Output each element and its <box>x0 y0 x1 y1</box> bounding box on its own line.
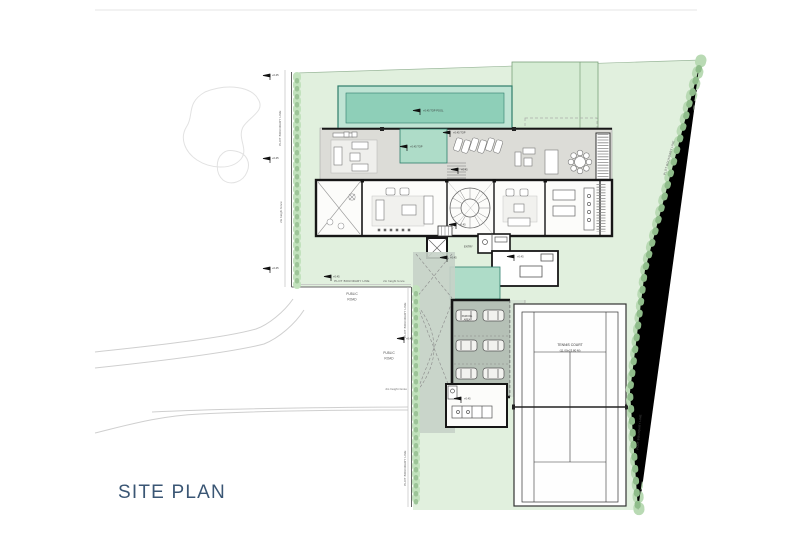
public-road-label-1b: ROAD <box>347 298 357 302</box>
plot-boundary-label-left: PLOT BOUNDARY LINE <box>278 110 282 145</box>
level-label: +0.45 <box>406 337 413 341</box>
column <box>361 179 365 183</box>
tennis-court: TENNIS COURT (11.00x23.80 M) <box>512 304 628 506</box>
column <box>493 179 497 183</box>
deck-level-label2: +0.45 TOP <box>410 145 423 149</box>
louver-hatch <box>596 133 610 180</box>
entry-planter <box>450 267 500 299</box>
parking-area-label2: AREA <box>464 319 471 322</box>
level-label: +0.45 <box>464 397 471 401</box>
level-label: +0.45 <box>272 266 279 270</box>
fence-label-road: 2m height fence <box>386 387 408 391</box>
public-road-label-2a: PUBLIC <box>383 351 395 355</box>
plot-boundary-label-bottom: PLOT BOUNDARY LINE <box>334 279 369 283</box>
pool-level-label: +0.45 TOP POOL <box>423 109 444 113</box>
column <box>544 179 548 183</box>
level-label: +0.45 <box>450 256 457 260</box>
level-label: +0.45 <box>272 73 279 77</box>
road-edges <box>95 299 408 433</box>
tennis-court-dim-label: (11.00x23.80 M) <box>560 349 581 353</box>
public-road-label-2b: ROAD <box>384 357 394 361</box>
main-house <box>316 179 612 236</box>
column <box>512 127 516 131</box>
plot-boundary-label-road-lower: PLOT BOUNDARY LINE <box>403 450 407 485</box>
fence-label-left: 2m height fence <box>279 201 283 223</box>
site-plan-drawing: PARKING AREA TENNIS COURT (11.00x23.80 M… <box>0 0 788 543</box>
stair-grid <box>438 226 452 236</box>
public-road-label-1a: PUBLIC <box>346 292 358 296</box>
page-title: SITE PLAN <box>118 482 226 503</box>
column <box>445 179 449 183</box>
level-label: +0.45 <box>461 168 468 172</box>
contour-blobs <box>183 87 260 183</box>
tennis-court-label: TENNIS COURT <box>557 343 582 347</box>
level-label: +0.45 <box>333 275 340 279</box>
level-label: +0.45 <box>517 255 524 259</box>
level-label: +0.45 <box>272 156 279 160</box>
swimming-pool <box>338 86 512 129</box>
plot-boundary-label-road-upper: PLOT BOUNDARY LINE <box>403 302 407 337</box>
column <box>380 127 384 131</box>
entry-label: ENTRY <box>464 245 473 249</box>
fence-label-bottom: 2m height fence <box>383 279 405 283</box>
site-plan-page: PARKING AREA TENNIS COURT (11.00x23.80 M… <box>0 0 788 543</box>
pool-deck <box>320 127 612 180</box>
deck-level-label: +0.45 TOP <box>453 131 466 135</box>
utility-room <box>446 384 507 427</box>
guest-room <box>492 251 558 286</box>
level-label: +0.45 <box>459 223 466 227</box>
